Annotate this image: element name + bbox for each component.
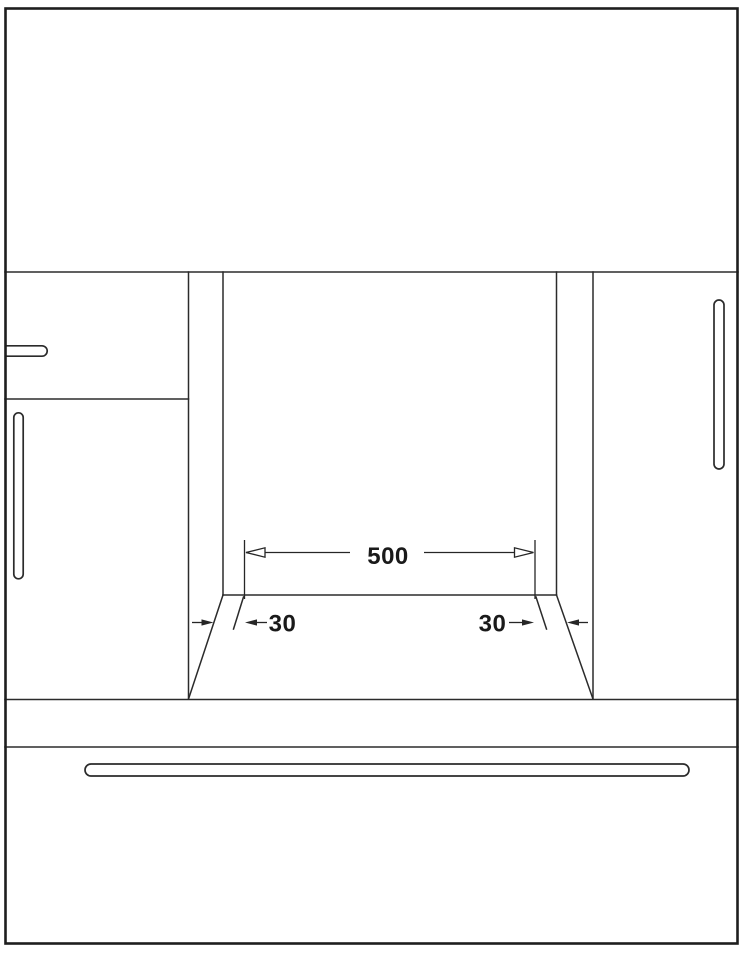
dimension-arrowhead-right xyxy=(515,548,534,557)
outer-frame xyxy=(6,9,738,944)
base-drawer-handle xyxy=(85,764,689,776)
right-wall-thickness-label: 30 xyxy=(479,611,507,638)
cabinetry-linework xyxy=(5,272,738,747)
niche-wall-right-front-edge xyxy=(536,597,547,629)
right-inner-arrowhead xyxy=(522,619,534,625)
left-cabinet-upper-door-handle xyxy=(6,346,48,356)
right-wall-thickness-dimension: 30 xyxy=(479,611,588,638)
niche-wall-left-front-edge xyxy=(234,597,244,629)
left-wall-thickness-label: 30 xyxy=(269,611,297,638)
right-outer-arrowhead xyxy=(567,619,579,625)
cabinet-handles xyxy=(6,300,725,776)
installation-diagram: 500 30 30 xyxy=(0,0,743,958)
right-cabinet-door-handle xyxy=(714,300,724,469)
dimension-arrowhead-left xyxy=(246,548,265,557)
niche-floor-left-edge xyxy=(189,595,224,699)
niche-width-dimension: 500 xyxy=(245,540,536,599)
niche-floor-right-edge xyxy=(557,595,594,699)
left-outer-arrowhead xyxy=(202,619,214,625)
left-cabinet-door-handle xyxy=(14,413,23,579)
left-inner-arrowhead xyxy=(245,619,257,625)
installation-drawing-page: 500 30 30 xyxy=(0,0,743,958)
niche-width-label: 500 xyxy=(367,543,409,570)
left-wall-thickness-dimension: 30 xyxy=(192,611,296,638)
